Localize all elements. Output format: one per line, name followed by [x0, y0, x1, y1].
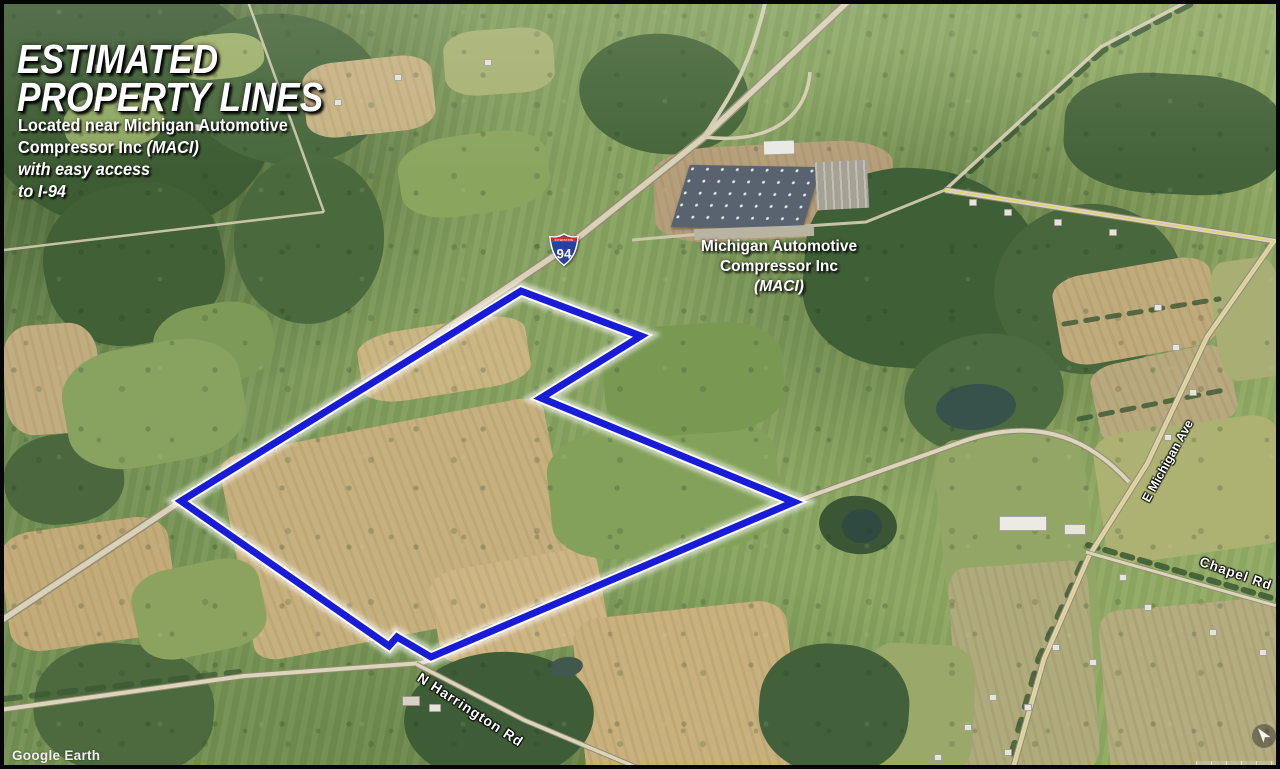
google-earth-watermark: Google Earth	[12, 748, 100, 763]
flyer-image: INTERSTATE 94 ESTIMATED PROPERTY LINES L…	[0, 0, 1280, 769]
subtitle-line-1: Located near Michigan Automotive	[18, 114, 288, 136]
shield-top-text: INTERSTATE	[555, 238, 574, 242]
facility-label: Michigan Automotive Compressor Inc (MACI…	[689, 237, 869, 296]
facility-label-line3: (MACI)	[689, 277, 869, 297]
subtitle-block: Located near Michigan Automotive Compres…	[18, 114, 288, 202]
i94-shield: INTERSTATE 94	[548, 233, 580, 266]
title-line-1: ESTIMATED	[17, 40, 323, 78]
subtitle-line-2: Compressor Inc (MACI)	[18, 136, 288, 158]
compass-icon	[1251, 723, 1276, 749]
subtitle-line-2-italic: (MACI)	[146, 137, 198, 157]
subtitle-line-3: with easy access	[18, 158, 288, 180]
facility-label-line2: Compressor Inc	[689, 257, 869, 277]
title-line-2: PROPERTY LINES	[17, 78, 323, 116]
facility-label-line1: Michigan Automotive	[689, 237, 869, 257]
scale-bar	[1196, 761, 1274, 765]
shield-number: 94	[557, 246, 572, 261]
aerial-map: INTERSTATE 94 ESTIMATED PROPERTY LINES L…	[4, 4, 1276, 765]
subtitle-line-4: to I-94	[18, 180, 288, 202]
title-block: ESTIMATED PROPERTY LINES	[17, 40, 373, 116]
subtitle-line-2-normal: Compressor Inc	[18, 137, 146, 157]
